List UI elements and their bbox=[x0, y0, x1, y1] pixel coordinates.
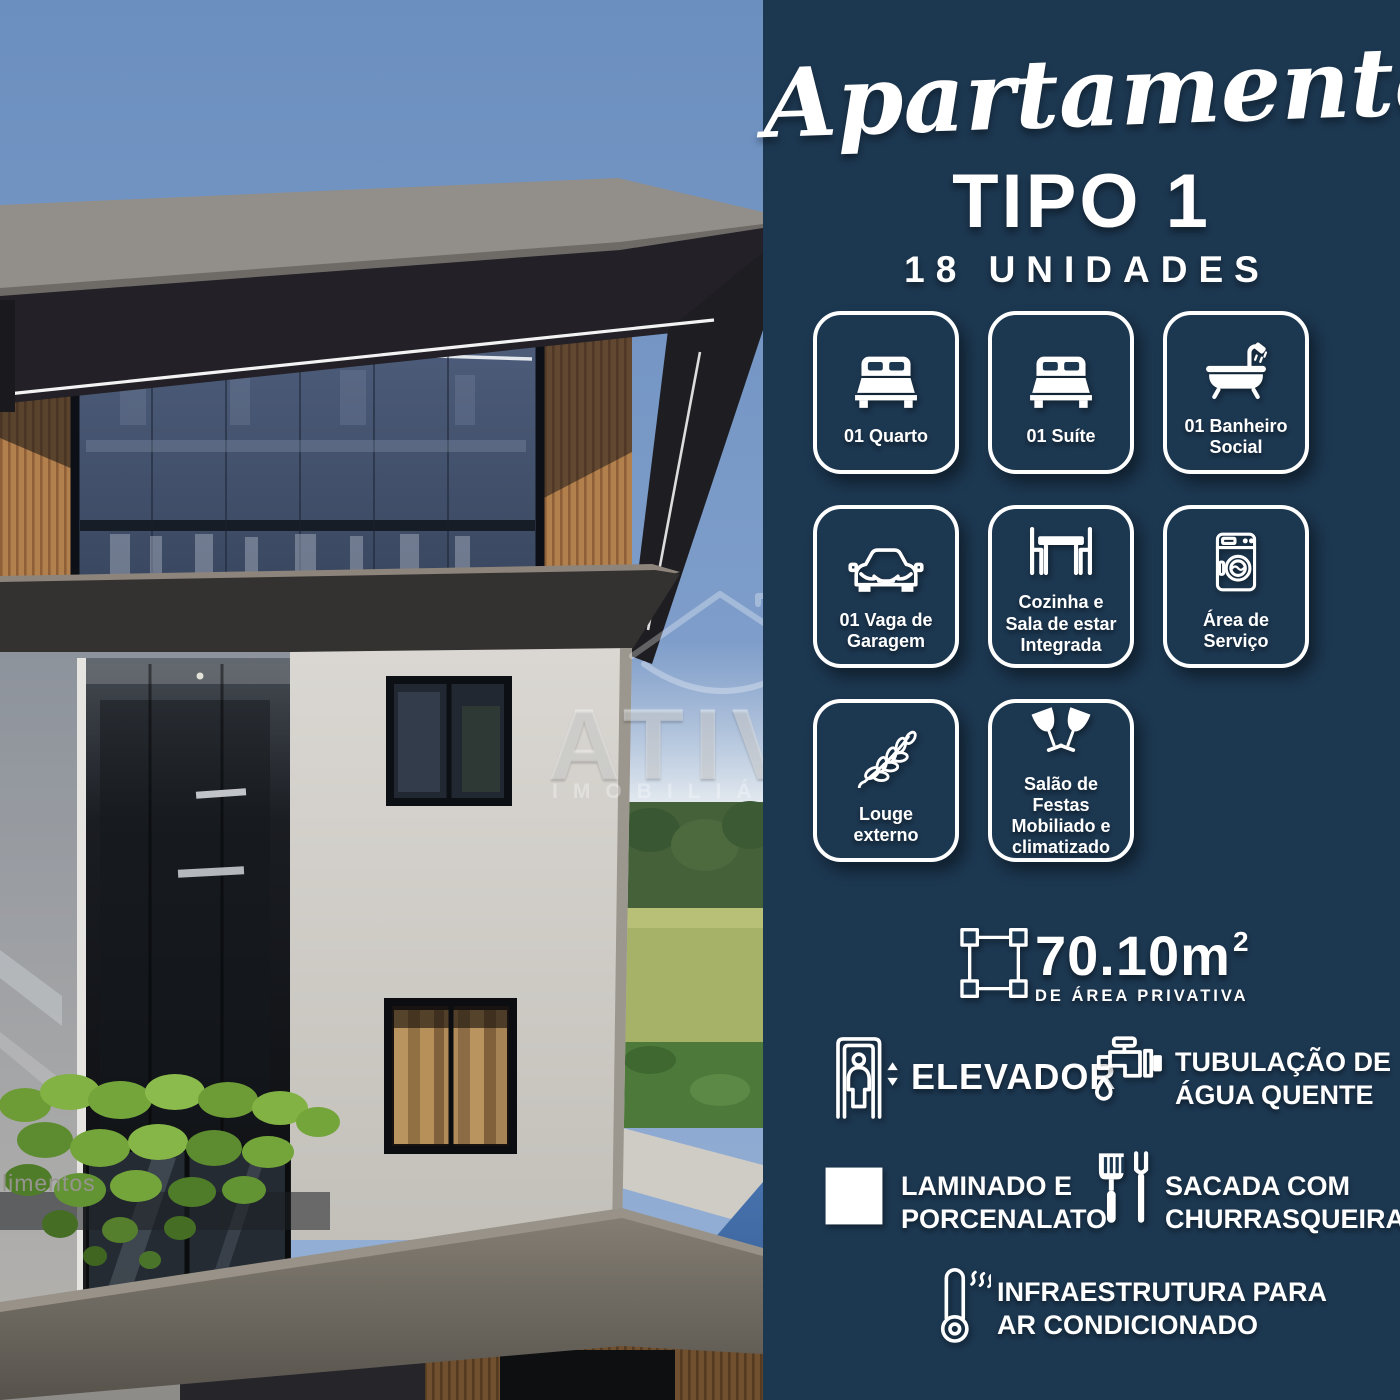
thermometer-icon bbox=[921, 1262, 991, 1355]
small-window bbox=[390, 680, 508, 802]
feature-label-tubulacao: TUBULAÇÃO DE ÁGUA QUENTE bbox=[1175, 1046, 1391, 1112]
faucet-icon bbox=[1085, 1028, 1165, 1121]
card-garagem: 01 Vaga de Garagem bbox=[813, 505, 959, 668]
card-suite: 01 Suíte bbox=[988, 311, 1134, 474]
card-label: Salão de Festas Mobiliado e climatizado bbox=[996, 774, 1126, 859]
feature-label-laminado: LAMINADO E PORCENALATO bbox=[901, 1170, 1107, 1236]
flyer: limentos ATIVA IMOBILIÁRIA Apartamento T… bbox=[0, 0, 1400, 1400]
area-caption: DE ÁREA PRIVATIVA bbox=[1035, 987, 1249, 1006]
area-sup: 2 bbox=[1233, 926, 1250, 957]
wall-watermark-text: limentos bbox=[2, 1170, 96, 1197]
grill-tools-icon bbox=[1089, 1148, 1151, 1253]
title-type: TIPO 1 bbox=[763, 158, 1400, 245]
title-units: 18 UNIDADES bbox=[763, 249, 1400, 291]
dining-table-icon bbox=[1024, 517, 1098, 585]
title-script: Apartamento bbox=[761, 31, 1400, 158]
curtain-window bbox=[388, 1002, 513, 1150]
card-quarto: 01 Quarto bbox=[813, 311, 959, 474]
card-salao: Salão de Festas Mobiliado e climatizado bbox=[988, 699, 1134, 862]
toast-glasses-icon bbox=[1025, 703, 1097, 767]
card-louge: Louge externo bbox=[813, 699, 959, 862]
double-bed-icon bbox=[849, 337, 923, 419]
card-label: Área de Serviço bbox=[1203, 610, 1269, 652]
floor-tile-icon bbox=[819, 1160, 889, 1237]
card-label: 01 Vaga de Garagem bbox=[839, 610, 932, 652]
card-label: 01 Quarto bbox=[844, 426, 928, 447]
car-icon bbox=[846, 521, 926, 603]
card-label: 01 Suíte bbox=[1026, 426, 1095, 447]
leaf-branch-icon bbox=[851, 715, 921, 797]
card-cozinha: Cozinha e Sala de estar Integrada bbox=[988, 505, 1134, 668]
feature-card-grid: 01 Quarto 01 Suíte bbox=[813, 311, 1313, 862]
area-value: 70.10m2 bbox=[1035, 928, 1249, 984]
feature-label-sacada: SACADA COM CHURRASQUEIRA bbox=[1165, 1170, 1400, 1236]
area-dimension-icon bbox=[953, 920, 1035, 1011]
double-bed-icon bbox=[1024, 337, 1098, 419]
card-label: Louge externo bbox=[853, 804, 918, 846]
bathtub-shower-icon bbox=[1200, 327, 1272, 409]
card-servico: Área de Serviço bbox=[1163, 505, 1309, 668]
card-label: 01 Banheiro Social bbox=[1184, 416, 1287, 458]
slab bbox=[0, 570, 680, 656]
card-label: Cozinha e Sala de estar Integrada bbox=[1005, 592, 1116, 656]
card-banheiro: 01 Banheiro Social bbox=[1163, 311, 1309, 474]
grass-field bbox=[615, 908, 763, 1048]
feature-label-infraestrutura: INFRAESTRUTURA PARA AR CONDICIONADO bbox=[997, 1276, 1327, 1342]
elevator-icon bbox=[825, 1028, 903, 1125]
area-block: 70.10m2 DE ÁREA PRIVATIVA bbox=[1035, 928, 1249, 1006]
washing-machine-icon bbox=[1203, 521, 1269, 603]
info-panel: Apartamento TIPO 1 18 UNIDADES 0 bbox=[763, 0, 1400, 1400]
